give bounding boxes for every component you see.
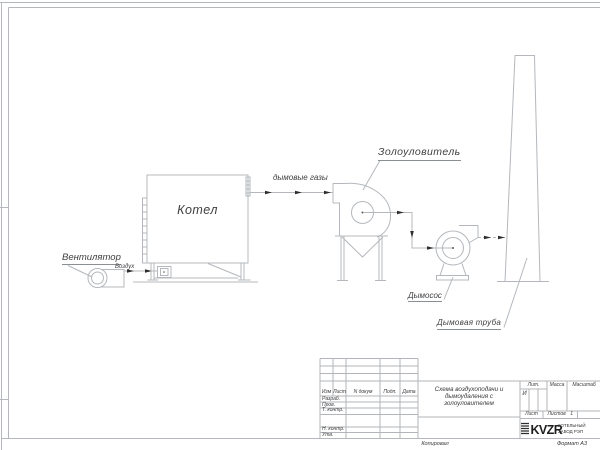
- flow-path-arrows: [397, 211, 434, 250]
- sheets-cell: Листов 1: [543, 412, 578, 417]
- exhauster-to-chimney-line: [478, 236, 505, 240]
- titleblock-col-podp: Подп.: [380, 390, 400, 395]
- mass-header: Масса: [547, 383, 567, 388]
- titleblock-col-izm: Изм: [320, 390, 333, 395]
- logo-stripes-icon: [521, 424, 529, 434]
- chimney-leader-line: [504, 258, 527, 328]
- copied-by-label: Копировал: [413, 442, 457, 448]
- drawing-title-line1: Схема воздухоподачи и: [418, 386, 520, 393]
- sheets-label: Листов: [548, 412, 566, 417]
- chimney-label: Дымовая труба: [437, 319, 501, 330]
- boiler-label: Котел: [147, 204, 248, 218]
- drawing-sheet: Вентилятор Воздух Котел дымовые газы Зол…: [0, 0, 600, 450]
- sheet-frame: [0, 3, 600, 450]
- ash-collector-label: Золоуловитель: [378, 147, 461, 161]
- drawing-title-line3: золоуловителем: [418, 400, 520, 407]
- ash-collector-leader-line: [363, 161, 380, 191]
- titleblock-row-utv: Утв.: [322, 433, 333, 438]
- titleblock-col-list: Лист: [333, 390, 346, 395]
- flue-gases-label: дымовые газы: [273, 174, 328, 183]
- drawing-title-line2: дымоудаления с: [418, 393, 520, 400]
- boiler-symbol: [133, 175, 258, 282]
- sheet-label: Лист: [520, 412, 543, 417]
- air-flow-label: Воздух: [115, 264, 134, 271]
- lit-value: И: [520, 391, 529, 397]
- company-name-line2: ЗАВОД РЭП: [558, 429, 583, 434]
- drawing-canvas: [0, 0, 600, 450]
- titleblock-row-t-kontr: Т. контр.: [322, 408, 344, 413]
- drawing-title: Схема воздухоподачи и дымоудаления с зол…: [418, 386, 520, 408]
- titleblock-row-razrab: Разраб.: [322, 397, 340, 402]
- smoke-exhauster-symbol: [436, 226, 478, 300]
- flue-gas-line: [250, 191, 333, 195]
- titleblock-col-data: Дата: [400, 390, 418, 395]
- fan-leader-line: [68, 266, 92, 278]
- smoke-exhauster-label: Дымосос: [408, 292, 442, 303]
- titleblock-col-doc: N докум: [346, 390, 380, 395]
- scale-header: Масштаб: [567, 383, 600, 388]
- sheet-format-label: Формат А3: [548, 442, 596, 448]
- lit-header: Лит.: [520, 383, 547, 388]
- fan-label: Вентилятор: [62, 253, 121, 265]
- chimney-symbol: [497, 56, 549, 328]
- sheets-value: 1: [570, 412, 573, 417]
- ash-collector-symbol: [333, 161, 391, 281]
- company-name-line1: КОТЕЛЬНЫЙ: [558, 423, 586, 428]
